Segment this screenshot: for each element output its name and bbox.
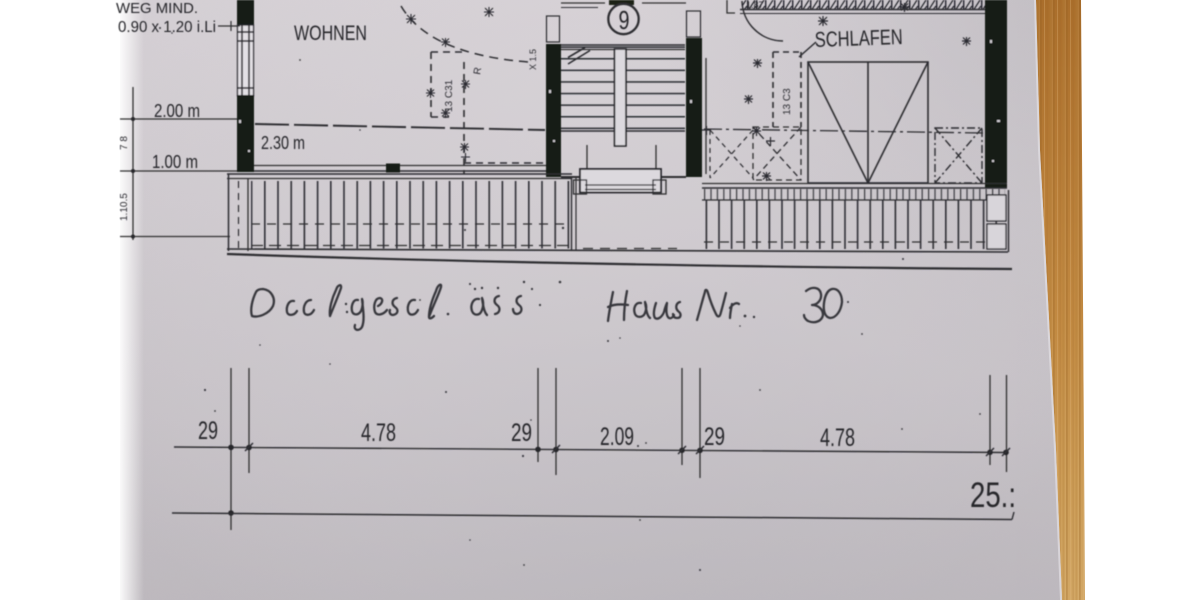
svg-text:13 C31: 13 C31 xyxy=(444,79,455,112)
svg-text:25.:: 25.: xyxy=(970,476,1016,515)
svg-text:WEG MIND.: WEG MIND. xyxy=(116,1,198,17)
svg-text:13 C3: 13 C3 xyxy=(782,88,793,115)
svg-text:4.78: 4.78 xyxy=(820,424,855,452)
svg-text:0.90 x 1.20 i.Li: 0.90 x 1.20 i.Li xyxy=(118,19,216,36)
svg-text:29: 29 xyxy=(198,417,218,445)
svg-text:1.10.5: 1.10.5 xyxy=(119,193,130,221)
svg-text:2.00 m: 2.00 m xyxy=(154,100,200,121)
svg-text:1.00 m: 1.00 m xyxy=(152,151,198,172)
svg-text:7 8: 7 8 xyxy=(119,136,130,150)
svg-text:WOHNEN: WOHNEN xyxy=(294,21,367,45)
svg-text:X 1.5: X 1.5 xyxy=(528,49,538,70)
svg-text:2.09: 2.09 xyxy=(600,423,634,451)
svg-text:SCHLAFEN: SCHLAFEN xyxy=(814,25,903,52)
svg-text:4.78: 4.78 xyxy=(361,419,396,447)
svg-text:2.30 m: 2.30 m xyxy=(261,132,305,153)
svg-text:29: 29 xyxy=(704,423,725,451)
svg-text:9: 9 xyxy=(619,5,630,35)
svg-text:29: 29 xyxy=(511,419,532,447)
